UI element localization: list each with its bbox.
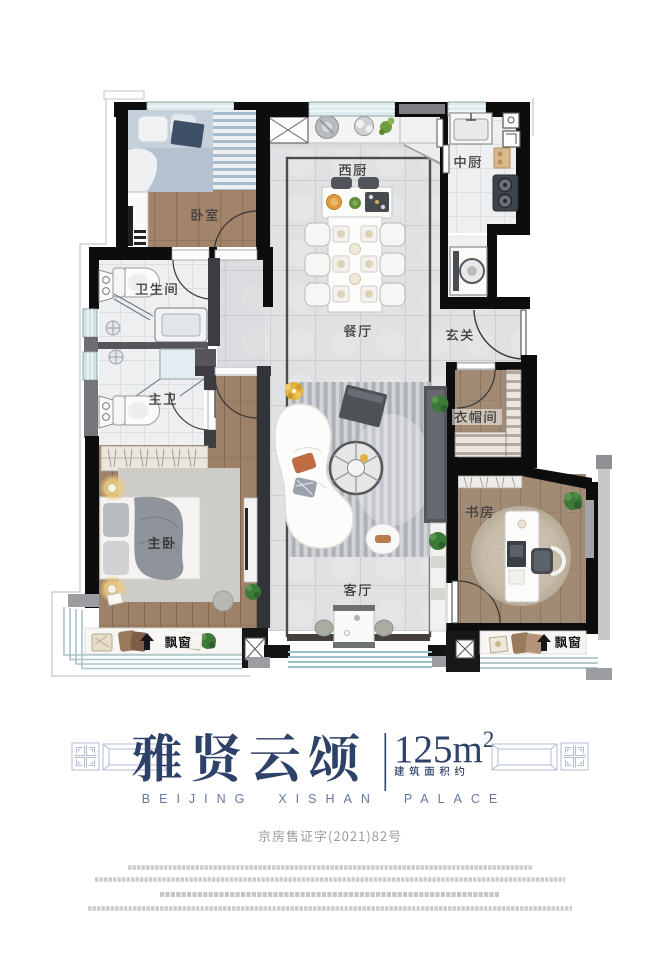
svg-text:BEIJING XISHAN PALACE: BEIJING XISHAN PALACE xyxy=(142,792,506,806)
svg-text:125m2: 125m2 xyxy=(394,727,494,771)
